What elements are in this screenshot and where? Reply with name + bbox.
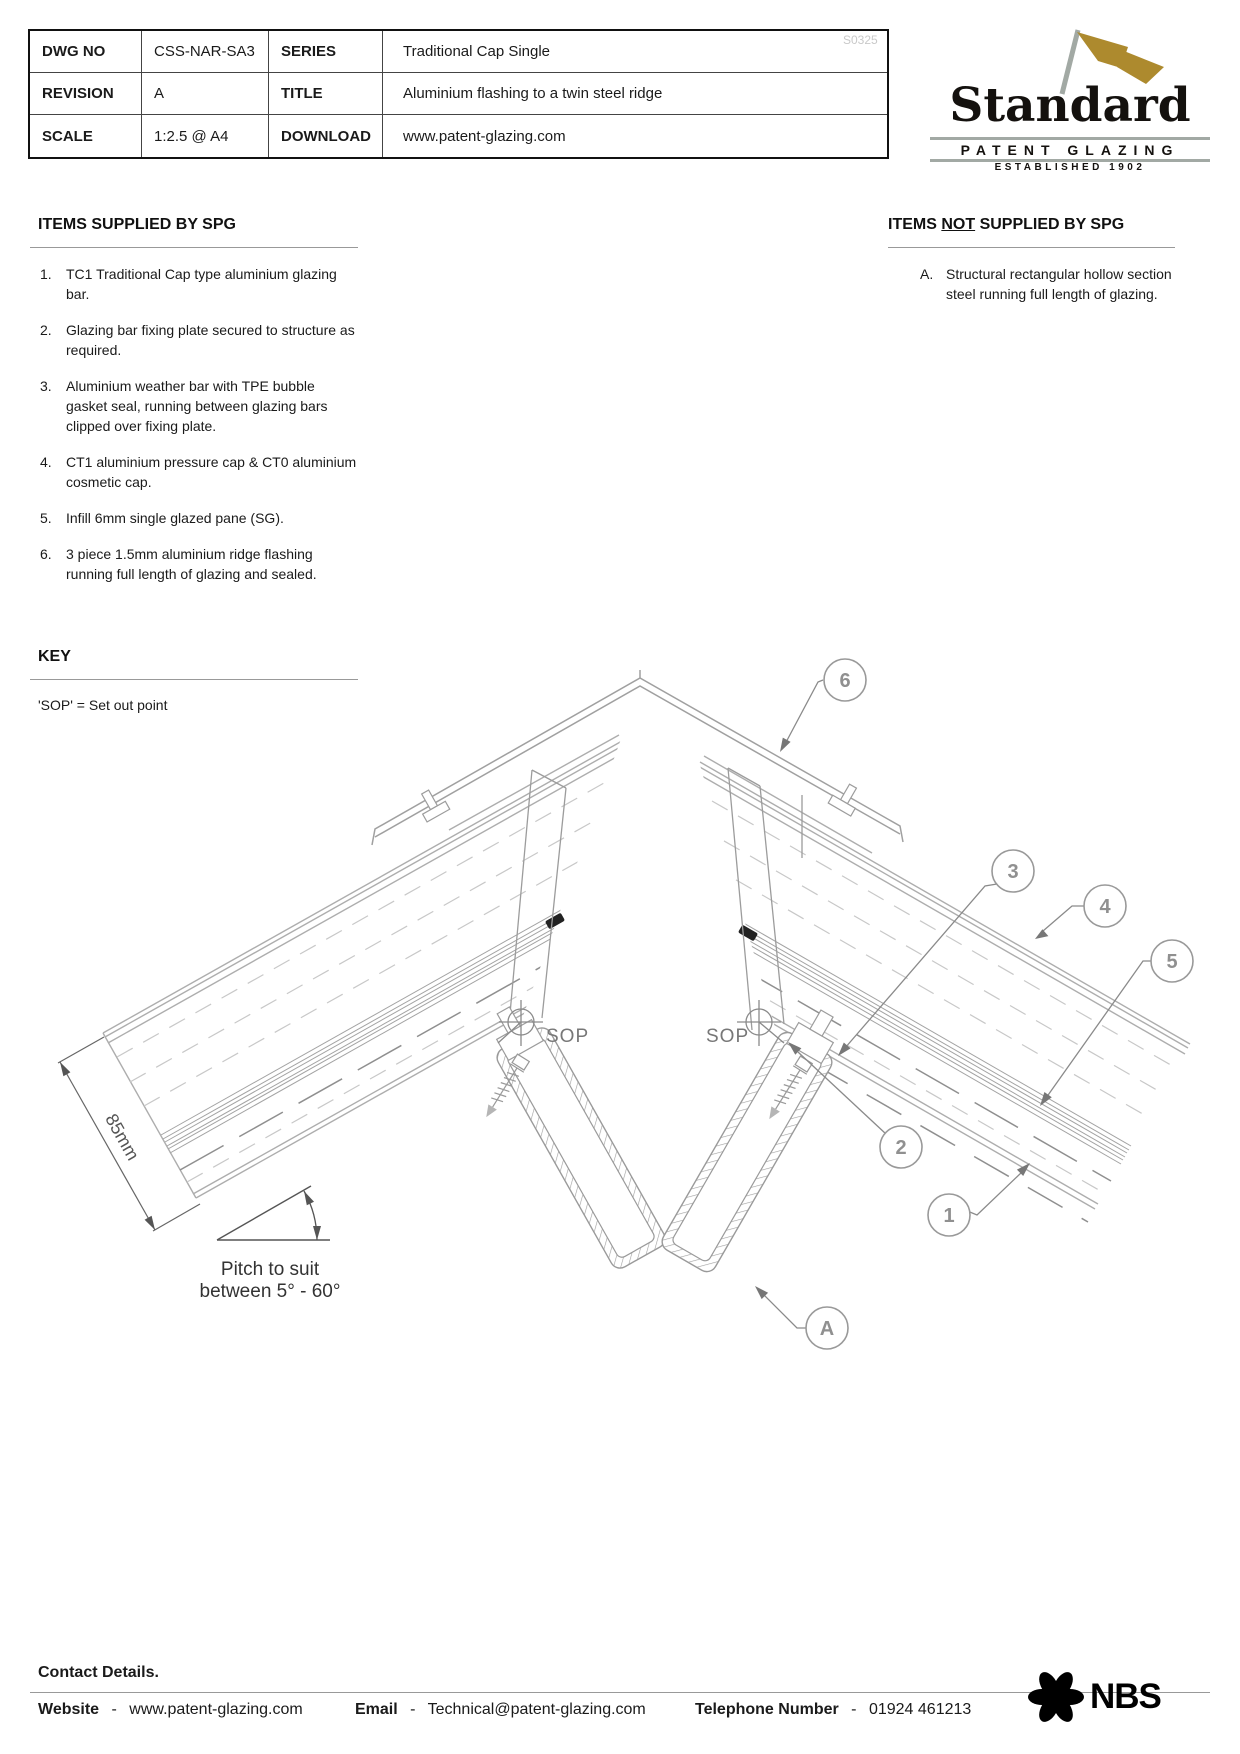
download-label: DOWNLOAD (269, 115, 383, 157)
email-group: Email - Technical@patent-glazing.com (355, 1701, 646, 1719)
item-number: 3. (40, 376, 66, 436)
item-text: CT1 aluminium pressure cap & CT0 alumini… (66, 452, 358, 492)
items-supplied-rule (30, 247, 358, 248)
svg-text:A: A (820, 1318, 834, 1340)
left-screw (479, 1054, 530, 1122)
right-glazing-band (598, 756, 1190, 1222)
items-not-supplied-list: A. Structural rectangular hollow section… (888, 264, 1188, 304)
list-item: A. Structural rectangular hollow section… (920, 264, 1188, 304)
website-value[interactable]: www.patent-glazing.com (129, 1701, 302, 1718)
sop-label-right: SOP (706, 1026, 749, 1047)
callout-leaders (760, 680, 1152, 1328)
website-separator: - (112, 1701, 117, 1718)
list-item: 6. 3 piece 1.5mm aluminium ridge flashin… (40, 544, 358, 584)
item-number: 4. (40, 452, 66, 492)
heading-post: SUPPLIED BY SPG (975, 216, 1124, 233)
item-number: 2. (40, 320, 66, 360)
dwg-no-value: CSS-NAR-SA3 (142, 31, 269, 73)
left-flashing-clamp (414, 786, 450, 822)
items-not-supplied-heading: ITEMS NOT SUPPLIED BY SPG (888, 216, 1188, 234)
list-item: 1. TC1 Traditional Cap type aluminium gl… (40, 264, 358, 304)
item-number: 6. (40, 544, 66, 584)
phone-label: Telephone Number (695, 1701, 839, 1718)
phone-separator: - (851, 1701, 856, 1718)
right-gasket-end (738, 925, 758, 942)
revision-value: A (142, 73, 269, 115)
item-number: 1. (40, 264, 66, 304)
callout-3: 3 (992, 850, 1034, 892)
scale-value: 1:2.5 @ A4 (142, 115, 269, 157)
email-value[interactable]: Technical@patent-glazing.com (428, 1701, 646, 1718)
dwg-no-label: DWG NO (30, 31, 142, 73)
nbs-logo: NBS (1024, 1660, 1161, 1734)
website-label: Website (38, 1701, 99, 1718)
right-glass-pane-lines (631, 864, 1131, 1164)
pitch-text-line1: Pitch to suit (221, 1259, 320, 1280)
callout-6: 6 (824, 659, 866, 701)
item-text: Aluminium weather bar with TPE bubble ga… (66, 376, 358, 436)
logo-subtitle: PATENT GLAZING (930, 140, 1210, 159)
list-item: 3. Aluminium weather bar with TPE bubble… (40, 376, 358, 436)
item-text: Glazing bar fixing plate secured to stru… (66, 320, 358, 360)
list-item: 4. CT1 aluminium pressure cap & CT0 alum… (40, 452, 358, 492)
ridge-flashing (372, 670, 903, 845)
left-glass-pane-lines (161, 843, 689, 1153)
svg-text:1: 1 (943, 1205, 954, 1227)
svg-text:6: 6 (839, 670, 850, 692)
callout-5: 5 (1151, 940, 1193, 982)
items-supplied-list: 1. TC1 Traditional Cap type aluminium gl… (30, 264, 358, 584)
nbs-flower-icon (1024, 1660, 1088, 1734)
item-text: Infill 6mm single glazed pane (SG). (66, 508, 358, 528)
scale-label: SCALE (30, 115, 142, 157)
items-not-supplied-section: ITEMS NOT SUPPLIED BY SPG A. Structural … (888, 216, 1188, 320)
right-steel-rhs (659, 1029, 836, 1276)
contact-details-heading: Contact Details. (38, 1664, 159, 1682)
item-number: 5. (40, 508, 66, 528)
items-supplied-heading: ITEMS SUPPLIED BY SPG (30, 216, 358, 234)
svg-text:4: 4 (1099, 896, 1111, 918)
title-value: Aluminium flashing to a twin steel ridge (383, 73, 887, 115)
item-text: Structural rectangular hollow section st… (946, 264, 1188, 304)
callout-A: A (806, 1307, 848, 1349)
left-gasket-end (545, 913, 565, 930)
right-flashing-clamp (828, 780, 864, 816)
leader-arrowheads (755, 738, 1052, 1300)
items-not-supplied-rule (888, 247, 1175, 248)
logo-established: ESTABLISHED 1902 (930, 162, 1210, 173)
heading-not: NOT (941, 216, 975, 233)
key-note: 'SOP' = Set out point (30, 697, 358, 713)
item-text: TC1 Traditional Cap type aluminium glazi… (66, 264, 358, 304)
title-block-table: DWG NO CSS-NAR-SA3 SERIES Traditional Ca… (28, 29, 889, 159)
revision-label: REVISION (30, 73, 142, 115)
items-supplied-section: ITEMS SUPPLIED BY SPG 1. TC1 Traditional… (30, 216, 358, 600)
left-steel-rhs (494, 1024, 669, 1271)
dimension-label: 85mm (101, 1110, 143, 1163)
list-item: 2. Glazing bar fixing plate secured to s… (40, 320, 358, 360)
right-screw (762, 1056, 813, 1124)
callout-1: 1 (928, 1194, 970, 1236)
title-label: TITLE (269, 73, 383, 115)
email-label: Email (355, 1701, 398, 1718)
series-value: Traditional Cap Single (383, 31, 887, 73)
callout-2: 2 (880, 1126, 922, 1168)
item-number: A. (920, 264, 946, 304)
key-rule (30, 679, 358, 680)
key-heading: KEY (30, 648, 358, 666)
svg-text:3: 3 (1007, 861, 1018, 883)
sheet-watermark: S0325 (843, 33, 878, 47)
phone-group: Telephone Number - 01924 461213 (695, 1701, 971, 1719)
sop-marker-right (737, 1000, 784, 1046)
dimension-85mm: 85mm (58, 1037, 200, 1231)
left-glazing-band (103, 735, 715, 1198)
list-item: 5. Infill 6mm single glazed pane (SG). (40, 508, 358, 528)
logo-flag-icon (1040, 22, 1170, 97)
download-url[interactable]: www.patent-glazing.com (383, 115, 887, 157)
website-group: Website - www.patent-glazing.com (38, 1701, 303, 1719)
logo-subtitle-block: PATENT GLAZING (930, 137, 1210, 162)
sop-marker-left (498, 1000, 543, 1046)
svg-text:5: 5 (1166, 951, 1177, 973)
twin-ridge-plates (508, 768, 802, 1036)
key-section: KEY 'SOP' = Set out point (30, 648, 358, 713)
callout-4: 4 (1084, 885, 1126, 927)
heading-pre: ITEMS (888, 216, 941, 233)
pitch-text-line2: between 5° - 60° (200, 1281, 341, 1302)
sop-label-left: SOP (546, 1026, 589, 1047)
phone-value: 01924 461213 (869, 1701, 971, 1718)
email-separator: - (410, 1701, 415, 1718)
nbs-text: NBS (1090, 1677, 1161, 1717)
pitch-indicator: Pitch to suit between 5° - 60° (200, 1186, 341, 1302)
right-fixing-plate (787, 1004, 845, 1064)
svg-text:2: 2 (895, 1137, 906, 1159)
series-label: SERIES (269, 31, 383, 73)
left-fixing-plate (486, 1001, 543, 1061)
item-text: 3 piece 1.5mm aluminium ridge flashing r… (66, 544, 358, 584)
